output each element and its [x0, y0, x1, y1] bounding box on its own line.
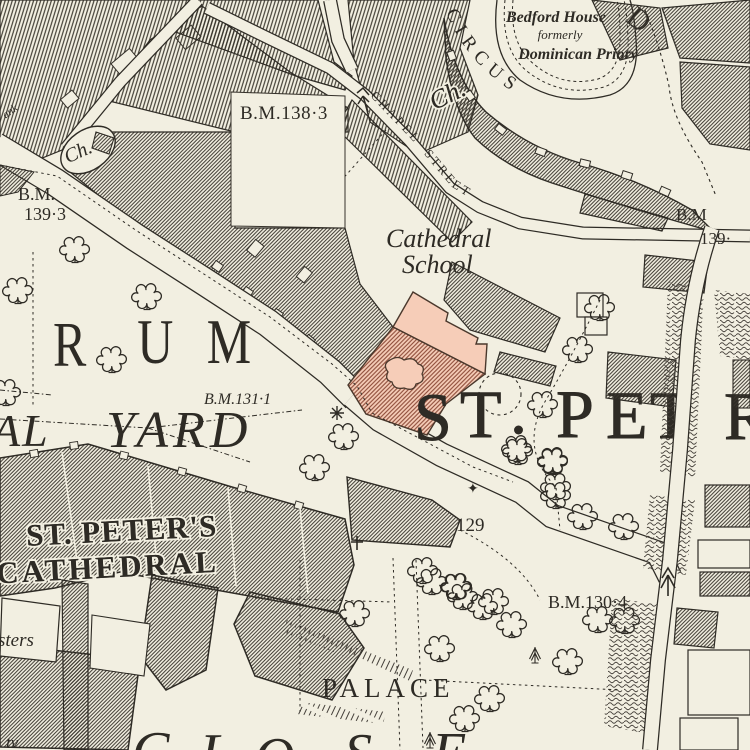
svg-text:B.M.138·3: B.M.138·3 — [240, 103, 328, 124]
svg-text:B.M.130·4: B.M.130·4 — [548, 592, 627, 612]
svg-text:B.M.: B.M. — [18, 184, 55, 204]
svg-text:U: U — [137, 307, 173, 377]
svg-text:S: S — [414, 379, 452, 455]
svg-text:L: L — [199, 723, 231, 750]
svg-text:Cathedral: Cathedral — [386, 224, 491, 253]
svg-text:S: S — [344, 723, 372, 750]
svg-text:AL: AL — [0, 405, 50, 456]
svg-text:PALACE: PALACE — [322, 673, 455, 703]
svg-text:✦: ✦ — [467, 482, 479, 497]
svg-text:139·: 139· — [700, 229, 731, 248]
svg-text:Bedford House: Bedford House — [505, 9, 606, 26]
svg-text:O: O — [254, 727, 294, 750]
svg-text:formerly: formerly — [538, 27, 583, 42]
svg-text:sters: sters — [0, 630, 34, 651]
svg-text:P: P — [556, 376, 594, 452]
svg-text:tv: tv — [6, 733, 19, 750]
svg-text:B.M.131·1: B.M.131·1 — [204, 391, 271, 408]
svg-text:E: E — [431, 722, 466, 750]
svg-text:129: 129 — [456, 515, 485, 536]
svg-text:M: M — [207, 307, 251, 377]
svg-text:C: C — [132, 721, 170, 750]
svg-text:T: T — [460, 376, 502, 452]
svg-text:YARD: YARD — [106, 402, 252, 459]
svg-text:B.M: B.M — [676, 205, 707, 224]
svg-text:139·3: 139·3 — [24, 204, 66, 224]
svg-text:R: R — [53, 310, 87, 380]
